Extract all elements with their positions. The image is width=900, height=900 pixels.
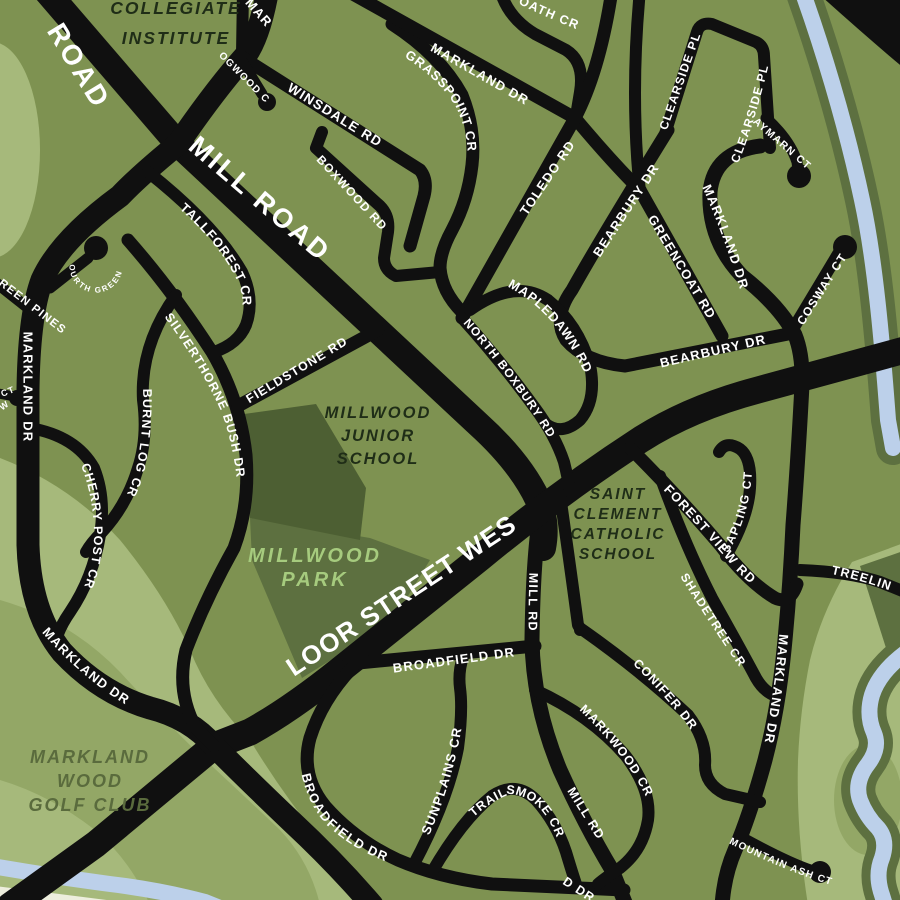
place-label-saint-clement-line1: SAINT [590,486,647,503]
place-label-saint-clement-line3: CATHOLIC [571,526,666,543]
road-label-markland-left: MARKLAND DR [21,332,36,443]
place-label-millwood-park-line2: PARK [281,569,348,591]
road-greencoat-north [635,0,640,192]
place-label-golf-club-line3: GOLF CLUB [29,795,152,815]
place-label-golf-club-line2: WOOD [57,771,123,791]
place-label-golf-club-line1: MARKLAND [30,747,150,767]
fourth-green-cul-de-sac [84,236,108,260]
place-label-saint-clement-line2: CLEMENT [574,506,663,523]
place-label-millwood-school-line1: MILLWOOD [325,404,432,422]
place-label-millwood-park-line1: MILLWOOD [248,545,382,567]
road-label-mill-rd-upper: MILL RD [526,573,541,632]
neighbourhood-map: ROAD MILL ROAD BLOOR STREET WEST MAR LOG… [0,0,900,900]
place-label-collegiate-line2: INSTITUTE [122,28,230,48]
place-label-saint-clement-line4: SCHOOL [579,546,657,563]
place-label-millwood-school-line2: JUNIOR [341,427,415,445]
road-top-stub [242,0,243,54]
place-label-millwood-school-line3: SCHOOL [337,450,420,468]
place-label-collegiate-line1: COLLEGIATE [110,0,241,18]
